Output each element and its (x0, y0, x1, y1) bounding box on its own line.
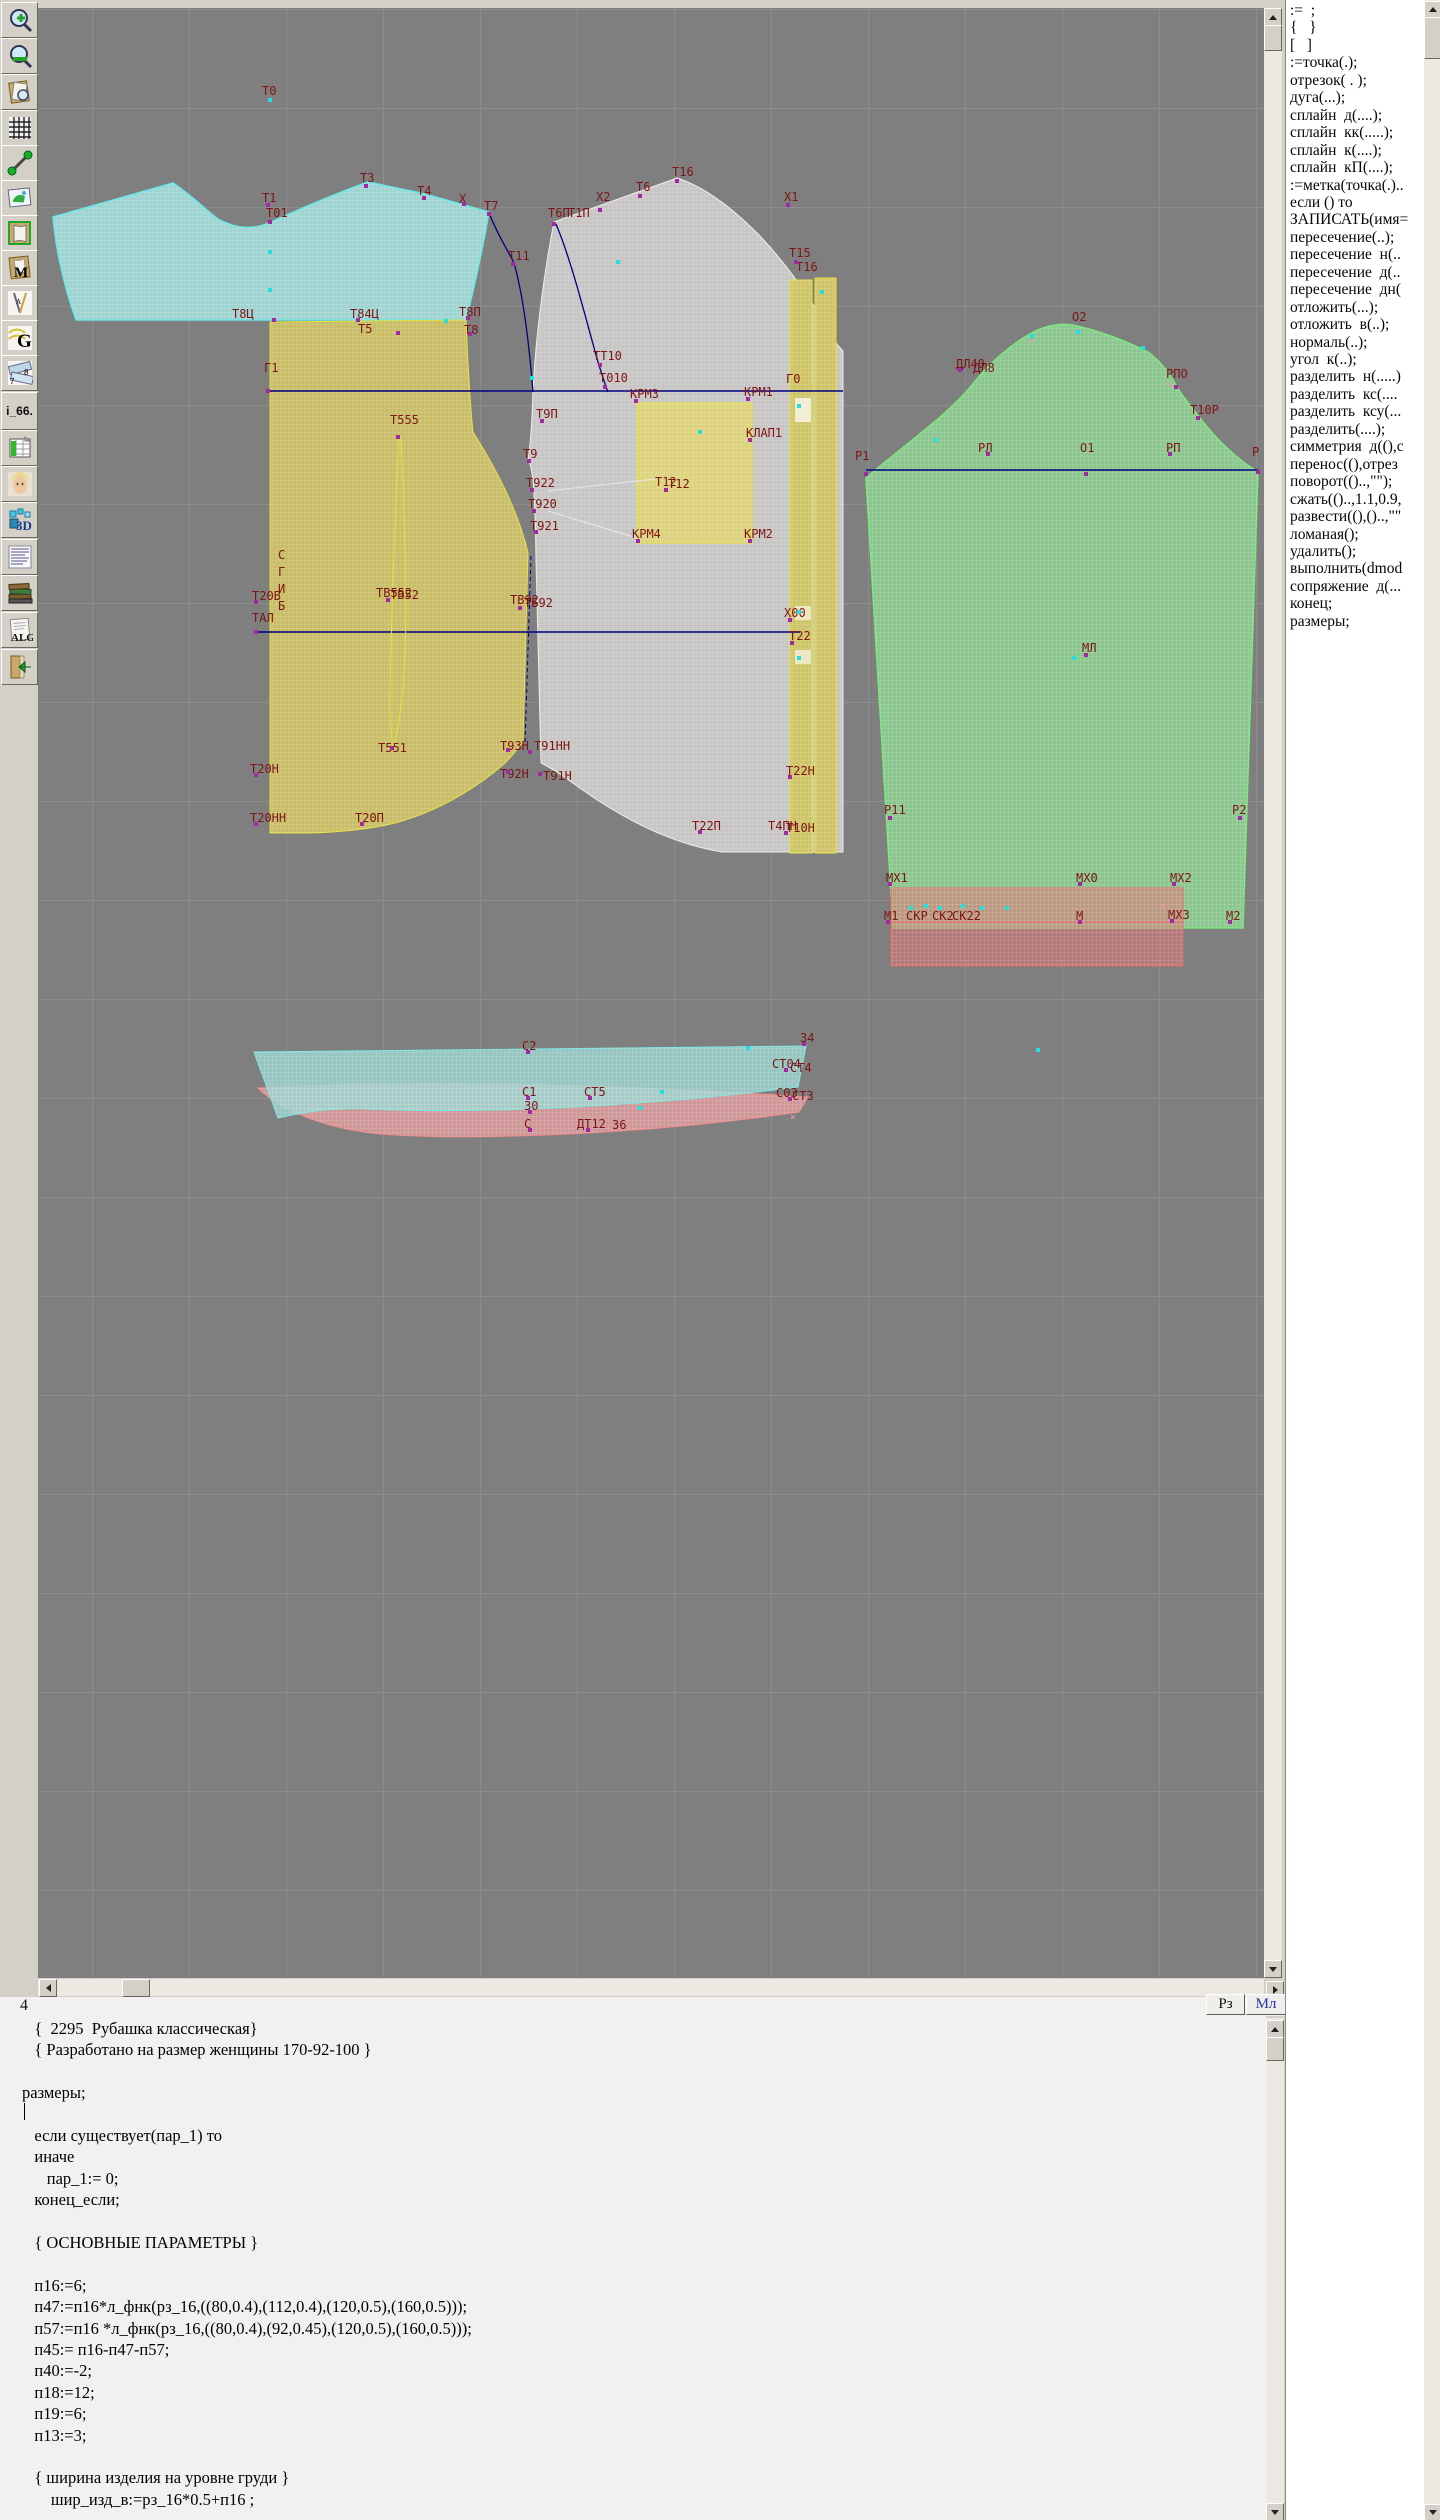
point-marker[interactable] (784, 1068, 788, 1072)
pattern-outline-icon[interactable] (1, 215, 38, 251)
table-chart-icon[interactable] (1, 430, 38, 466)
point-marker[interactable] (390, 746, 394, 750)
point-marker[interactable] (1168, 452, 1172, 456)
command-item[interactable]: отрезок( . ); (1290, 72, 1426, 89)
alg-label: ALG (11, 632, 33, 643)
point-marker[interactable] (797, 656, 801, 660)
point-label: З6 (612, 1119, 626, 1131)
command-item[interactable]: сплайн кП(....); (1290, 159, 1426, 176)
point-marker[interactable] (664, 488, 668, 492)
point-label: СТ3 (792, 1090, 814, 1102)
point-marker[interactable] (530, 376, 534, 380)
left-toolbar: M А G 78 i_66. 3D ALG (0, 0, 38, 1977)
editor-line: п16:=6; (22, 2275, 86, 2296)
point-marker[interactable] (444, 319, 448, 323)
point-label: Т16 (672, 166, 694, 178)
point-marker[interactable] (616, 260, 620, 264)
point-label: Т8Ц (232, 308, 254, 320)
point-marker[interactable] (1076, 330, 1080, 334)
command-item[interactable]: сжать(()..,1.1,0.9, (1290, 491, 1426, 508)
point-marker[interactable] (462, 202, 466, 206)
point-marker[interactable] (698, 830, 702, 834)
point-marker[interactable] (1078, 920, 1082, 924)
3d-label: 3D (16, 518, 32, 533)
editor-line: иначе (22, 2146, 74, 2167)
point-marker[interactable] (468, 332, 472, 336)
ml-button[interactable]: Мл (1246, 1994, 1286, 2015)
point-marker[interactable] (1005, 906, 1009, 910)
point-marker[interactable] (528, 1110, 532, 1114)
point-marker[interactable] (268, 250, 272, 254)
point-label: ДТ12 (577, 1118, 606, 1130)
point-marker[interactable] (786, 203, 790, 207)
editor-line: п45:= п16-п47-п57; (22, 2339, 169, 2360)
point-marker[interactable] (254, 773, 258, 777)
editor-line: п40:=-2; (22, 2360, 92, 2381)
point-marker[interactable] (1256, 470, 1260, 474)
point-label: Т12 (668, 478, 690, 490)
command-item[interactable]: перенос((),отрез (1290, 456, 1426, 473)
point-label: Т92Н (500, 768, 529, 780)
command-item[interactable]: если () то (1290, 194, 1426, 211)
point-marker[interactable] (530, 488, 534, 492)
point-marker[interactable] (638, 194, 642, 198)
placket-mark-1 (795, 398, 811, 422)
editor-line: { 2295 Рубашка классическая} (22, 2018, 258, 2039)
point-marker[interactable] (1141, 346, 1145, 350)
command-item[interactable]: ЗАПИСАТЬ(имя= (1290, 211, 1426, 228)
point-label: Т10Р (1190, 404, 1219, 416)
point-label: РПО (1166, 368, 1188, 380)
editor-line: шир_изд_в:=рз_16*0.5+п16 ; (22, 2489, 254, 2510)
command-item[interactable]: дуга(...); (1290, 89, 1426, 106)
command-item[interactable]: :=точка(.); (1290, 54, 1426, 71)
point-marker[interactable]: × (1160, 901, 1166, 912)
fold-label-char: И (278, 582, 285, 596)
point-marker[interactable] (534, 530, 538, 534)
editor-line: п13:=3; (22, 2425, 86, 2446)
point-label: ТТ10 (593, 350, 622, 362)
point-label: Т6П (548, 207, 570, 219)
app-window: M А G 78 i_66. 3D ALG (0, 0, 1440, 2520)
command-item[interactable]: пересечение н(.. (1290, 246, 1426, 263)
fold-label-char: Г (278, 565, 285, 579)
point-label: Г1 (264, 362, 278, 374)
point-marker[interactable] (1084, 472, 1088, 476)
point-marker[interactable] (980, 906, 984, 910)
point-marker[interactable] (675, 179, 679, 183)
command-item[interactable]: симметрия д((),с (1290, 438, 1426, 455)
pattern-drawing (38, 8, 1264, 1978)
point-label: Т11 (508, 250, 530, 262)
editor-line: если существует(пар_1) то (22, 2125, 222, 2146)
image-icon[interactable] (1, 180, 38, 216)
point-label: Т3 (360, 172, 374, 184)
point-label: Т555 (390, 414, 419, 426)
zoom-in-icon[interactable] (1, 2, 38, 38)
editor-scroll-down-icon[interactable] (1266, 2503, 1284, 2520)
command-item[interactable]: отложить(...); (1290, 299, 1426, 316)
status-bar: 4 Рз Мл (0, 1997, 1285, 2016)
editor-line: пар_1:= 0; (22, 2168, 119, 2189)
commands-scroll-up-icon[interactable] (1424, 1, 1440, 18)
point-label: Т93Н (500, 740, 529, 752)
commands-vscroll-thumb[interactable] (1424, 17, 1440, 59)
point-label: О2 (1072, 311, 1086, 323)
point-label: Т0 (262, 85, 276, 97)
command-item[interactable]: удалить(); (1290, 543, 1426, 560)
point-marker[interactable] (790, 641, 794, 645)
point-marker[interactable] (466, 316, 470, 320)
point-marker[interactable] (518, 606, 522, 610)
rulers-icon[interactable]: 78 (1, 355, 38, 391)
point-marker[interactable] (938, 906, 942, 910)
drawing-canvas[interactable]: Т0Т1Т01Т3Т4ХТ7Т11Т8ЦТ84ЦТ5Т8ПТ8Г1Т555Т16… (38, 8, 1264, 1978)
point-label: ДЛ8 (973, 362, 995, 374)
point-marker[interactable] (528, 1128, 532, 1132)
point-marker[interactable] (634, 399, 638, 403)
command-item[interactable]: поворот(()..,""); (1290, 473, 1426, 490)
text-cursor (24, 2103, 25, 2120)
svg-text:А: А (16, 298, 21, 306)
point-marker[interactable]: × (1166, 380, 1172, 391)
point-marker[interactable]: × (790, 1112, 796, 1123)
point-marker[interactable] (364, 184, 368, 188)
point-marker[interactable] (487, 212, 491, 216)
drafting-tools-icon[interactable]: А (1, 285, 38, 321)
editor-line: размеры; (22, 2082, 86, 2103)
editor-scroll-up-icon[interactable] (1266, 2020, 1284, 2038)
point-label: Т15 (789, 247, 811, 259)
piece-placket-strip-2[interactable] (815, 278, 836, 853)
point-marker[interactable] (797, 404, 801, 408)
piece-pocket[interactable] (637, 403, 752, 543)
point-marker[interactable] (422, 196, 426, 200)
canvas-scroll-down-icon[interactable] (1264, 1960, 1282, 1978)
canvas-hscrollbar[interactable] (38, 1979, 1264, 1996)
point-marker[interactable] (788, 775, 792, 779)
point-label: Т5 (358, 323, 372, 335)
point-marker[interactable] (506, 748, 510, 752)
command-item[interactable]: пересечение дн( (1290, 281, 1426, 298)
point-marker[interactable] (1072, 656, 1076, 660)
point-marker[interactable] (1174, 385, 1178, 389)
point-marker[interactable] (1172, 882, 1176, 886)
segment-icon[interactable] (1, 145, 38, 181)
g-tool-icon[interactable]: G (1, 320, 38, 356)
point-marker[interactable] (526, 1050, 530, 1054)
editor-line: { Разработано на размер женщины 170-92-1… (22, 2039, 372, 2060)
point-marker[interactable] (698, 430, 702, 434)
point-label: Т22П (692, 820, 721, 832)
point-marker[interactable] (527, 459, 531, 463)
portrait-icon[interactable] (1, 466, 38, 502)
point-marker[interactable] (748, 438, 752, 442)
point-marker[interactable] (794, 260, 798, 264)
command-item[interactable]: размеры; (1290, 613, 1426, 630)
point-marker[interactable] (356, 318, 360, 322)
point-marker[interactable] (909, 906, 913, 910)
command-item[interactable]: разделить ксу(... (1290, 403, 1426, 420)
editor-line: п18:=12; (22, 2382, 95, 2403)
fold-label-char: С (278, 548, 285, 562)
command-item[interactable]: пересечение д(.. (1290, 264, 1426, 281)
point-marker[interactable] (660, 1090, 664, 1094)
command-item[interactable]: ломаная(); (1290, 526, 1426, 543)
editor-line: конец_если; (22, 2189, 120, 2210)
line-number: 4 (20, 1997, 28, 2015)
point-marker[interactable] (254, 630, 258, 634)
i66-tool-button[interactable]: i_66. (1, 392, 38, 430)
point-marker[interactable] (266, 203, 270, 207)
point-marker[interactable] (746, 1046, 750, 1050)
point-marker[interactable] (924, 904, 928, 908)
command-item[interactable]: сплайн д(....); (1290, 107, 1426, 124)
code-editor[interactable]: { 2295 Рубашка классическая} { Разработа… (0, 2016, 1266, 2520)
point-marker[interactable] (746, 397, 750, 401)
canvas-vscrollbar[interactable] (1264, 8, 1282, 1978)
point-marker[interactable] (272, 318, 276, 322)
point-marker[interactable] (540, 419, 544, 423)
canvas-vscroll-thumb[interactable] (1264, 25, 1282, 51)
i66-label: i_66. (6, 404, 33, 418)
pattern-m-icon[interactable]: M (1, 250, 38, 286)
point-label: Т84Ц (350, 308, 379, 320)
books-icon[interactable] (1, 575, 38, 611)
point-marker[interactable] (986, 452, 990, 456)
point-label: Т10Н (786, 822, 815, 834)
point-marker[interactable] (638, 1106, 642, 1110)
point-marker[interactable] (552, 222, 556, 226)
command-list-panel: := ;{ }[ ]:=точка(.);отрезок( . );дуга(.… (1285, 0, 1440, 2520)
command-item[interactable]: сплайн к(....); (1290, 142, 1426, 159)
point-marker[interactable] (788, 1097, 792, 1101)
alg-doc-icon[interactable]: ALG (1, 612, 38, 648)
point-marker[interactable] (254, 600, 258, 604)
point-marker[interactable] (268, 220, 272, 224)
command-item[interactable]: :=метка(точка(.).. (1290, 177, 1426, 194)
canvas-scroll-left-icon[interactable] (39, 1979, 57, 1997)
point-marker[interactable] (360, 822, 364, 826)
zoom-out-icon[interactable] (1, 38, 38, 74)
point-marker[interactable] (1036, 1048, 1040, 1052)
rz-button[interactable]: Рз (1206, 1994, 1245, 2015)
point-label: СКР (906, 910, 928, 922)
m-letter: M (14, 265, 28, 281)
point-label: Г0 (786, 373, 800, 385)
editor-vscroll-thumb[interactable] (1266, 2037, 1284, 2061)
ruler-8: 8 (24, 368, 29, 377)
command-item[interactable]: выполнить(dmod (1290, 560, 1426, 577)
point-marker[interactable] (748, 539, 752, 543)
point-label: Х1 (784, 191, 798, 203)
point-marker[interactable] (506, 770, 510, 774)
point-marker[interactable] (864, 472, 868, 476)
point-marker[interactable] (396, 435, 400, 439)
point-marker[interactable] (511, 262, 515, 266)
command-item[interactable]: разделить кс(.... (1290, 386, 1426, 403)
point-marker[interactable] (1228, 920, 1232, 924)
point-marker[interactable] (1078, 882, 1082, 886)
point-marker[interactable] (598, 208, 602, 212)
point-marker[interactable] (1196, 416, 1200, 420)
point-marker[interactable] (266, 389, 270, 393)
point-marker[interactable] (1084, 653, 1088, 657)
point-marker[interactable] (784, 831, 788, 835)
point-label: Т01 (266, 207, 288, 219)
piece-cuff-band[interactable] (891, 888, 1183, 966)
point-label: Т91Н (543, 770, 572, 782)
ruler-7: 7 (10, 377, 15, 386)
editor-vscrollbar[interactable] (1266, 2018, 1284, 2520)
point-marker[interactable] (528, 750, 532, 754)
point-label: Р1 (855, 450, 869, 462)
command-item[interactable]: пересечение(..); (1290, 229, 1426, 246)
point-marker[interactable] (598, 363, 602, 367)
point-label: ТВ52 (390, 589, 419, 601)
point-label: Т1П (568, 207, 590, 219)
point-marker[interactable] (933, 438, 937, 442)
point-marker[interactable] (820, 290, 824, 294)
text-list-icon[interactable] (1, 539, 38, 575)
editor-line: { ОСНОВНЫЕ ПАРАМЕТРЫ } (22, 2232, 258, 2253)
point-marker[interactable] (268, 98, 272, 102)
point-label: Р (1252, 446, 1259, 458)
g-letter: G (17, 331, 32, 351)
point-label: Р11 (884, 804, 906, 816)
point-marker[interactable] (1170, 919, 1174, 923)
command-list-scrollbar[interactable] (1424, 0, 1440, 2520)
3d-tool-icon[interactable]: 3D (1, 502, 38, 538)
point-marker[interactable] (603, 385, 607, 389)
editor-line: { ширина изделия на уровне груди } (22, 2467, 289, 2488)
command-item[interactable]: { } (1290, 19, 1426, 36)
point-label: СК2 (932, 910, 954, 922)
point-label: ТАЛ (252, 612, 274, 624)
grid-icon[interactable] (1, 110, 38, 146)
point-marker[interactable] (586, 1128, 590, 1132)
editor-line: п19:=6; (22, 2403, 86, 2424)
canvas-scroll-up-icon[interactable] (1264, 8, 1282, 26)
point-label: Р2 (1232, 804, 1246, 816)
command-item[interactable]: сопряжение д(... (1290, 578, 1426, 595)
command-item[interactable]: сплайн кк(.....); (1290, 124, 1426, 141)
commands-scroll-down-icon[interactable] (1424, 2504, 1440, 2520)
point-label: Т010 (599, 372, 628, 384)
point-label: Х2 (596, 191, 610, 203)
command-item[interactable]: разделить(....); (1290, 421, 1426, 438)
point-label: Т6 (636, 181, 650, 193)
point-marker[interactable] (396, 331, 400, 335)
point-marker[interactable] (961, 904, 965, 908)
point-marker[interactable] (636, 539, 640, 543)
point-marker[interactable] (802, 1042, 806, 1046)
point-marker[interactable] (1238, 816, 1242, 820)
command-item[interactable]: разделить н(.....) (1290, 368, 1426, 385)
point-marker[interactable] (788, 618, 792, 622)
point-label: ТБ92 (524, 597, 553, 609)
point-label: СТ4 (790, 1062, 812, 1074)
point-marker[interactable] (532, 509, 536, 513)
point-label: Т91НН (534, 740, 570, 752)
preview-sheet-icon[interactable] (1, 74, 38, 110)
point-marker[interactable] (886, 920, 890, 924)
canvas-hscroll-thumb[interactable] (122, 1979, 150, 1997)
editor-line: п47:=п16*л_фнк(рз_16,((80,0.4),(112,0.4)… (22, 2296, 467, 2317)
command-item[interactable]: конец; (1290, 595, 1426, 612)
point-marker[interactable] (526, 1096, 530, 1100)
point-marker[interactable] (888, 816, 892, 820)
point-marker[interactable] (797, 610, 801, 614)
point-marker[interactable]: × (1028, 336, 1034, 347)
point-marker[interactable] (888, 882, 892, 886)
fold-label-char: Б (278, 599, 285, 613)
point-marker[interactable] (588, 1096, 592, 1100)
command-item[interactable]: развести((),()..,"" (1290, 508, 1426, 525)
point-label: Т16 (796, 261, 818, 273)
point-marker[interactable] (958, 368, 962, 372)
point-label: Т7 (484, 200, 498, 212)
command-item[interactable]: угол к(..); (1290, 351, 1426, 368)
editor-line: п57:=п16 *л_фнк(рз_16,((80,0.4),(92,0.45… (22, 2318, 472, 2339)
point-marker[interactable] (268, 288, 272, 292)
point-marker[interactable] (254, 822, 258, 826)
point-label: О1 (1080, 442, 1094, 454)
point-marker[interactable] (538, 772, 542, 776)
point-label: СК22 (952, 910, 981, 922)
point-marker[interactable] (386, 598, 390, 602)
exit-book-icon[interactable] (1, 649, 38, 685)
command-item[interactable]: := ; (1290, 2, 1426, 19)
command-item[interactable]: [ ] (1290, 37, 1426, 54)
command-item[interactable]: отложить в(..); (1290, 316, 1426, 333)
command-item[interactable]: нормаль(..); (1290, 334, 1426, 351)
